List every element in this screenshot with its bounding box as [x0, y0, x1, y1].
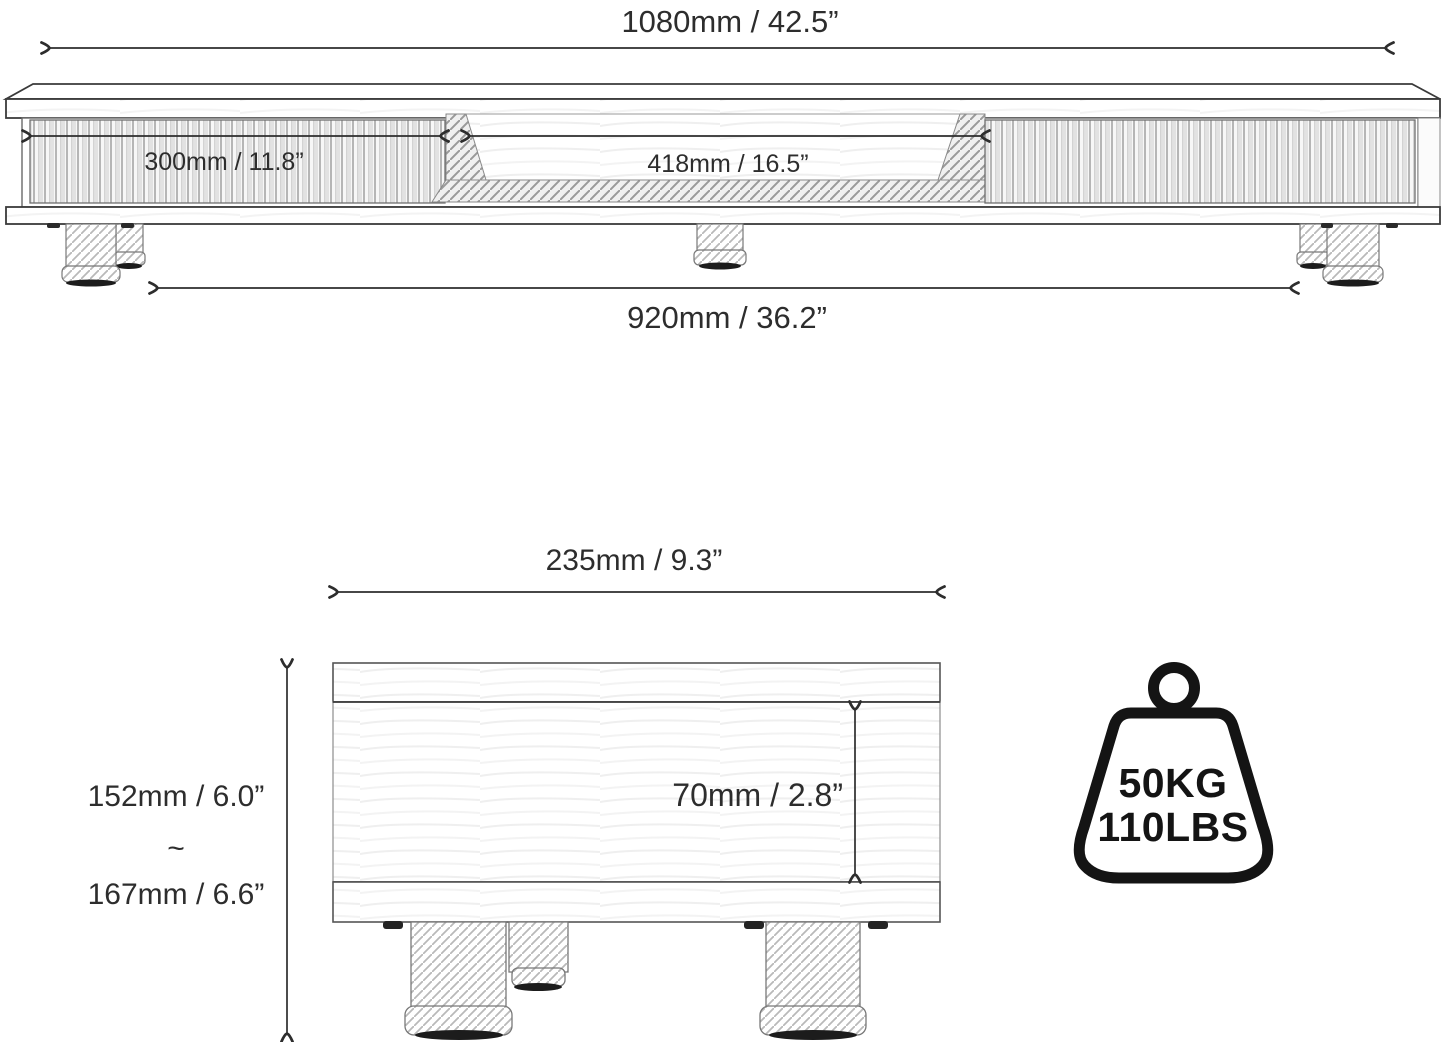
- drawer-width-label: 300mm / 11.8”: [144, 148, 303, 176]
- compartment-shelf-floor: [432, 180, 1000, 202]
- leg-front-right: [1323, 224, 1383, 287]
- side-body: [333, 663, 940, 922]
- front-view-legs: [47, 223, 1398, 287]
- overall-width-dimension: 1080mm / 42.5”: [50, 4, 1385, 48]
- height-dimension: 152mm / 6.0” ~ 167mm / 6.6”: [88, 668, 287, 1033]
- weight-lbs-label: 110LBS: [1097, 804, 1248, 850]
- diagram-canvas: 1080mm / 42.5” 300mm: [0, 0, 1445, 1042]
- height-range-separator: ~: [167, 832, 185, 865]
- side-view-legs: [383, 921, 888, 1040]
- inner-height-label: 70mm / 2.8”: [672, 777, 843, 813]
- leg-back-left: [114, 224, 145, 269]
- leg-back-right: [1297, 224, 1330, 269]
- side-top-panel: [333, 663, 940, 702]
- side-leg-front-left: [405, 922, 512, 1040]
- dimension-diagram: 1080mm / 42.5” 300mm: [0, 0, 1445, 1042]
- bottom-rail: [6, 207, 1440, 224]
- side-bottom-panel: [333, 882, 940, 922]
- depth-label: 235mm / 9.3”: [546, 544, 723, 577]
- overall-width-label: 1080mm / 42.5”: [621, 4, 838, 39]
- right-fluted-drawer: [985, 120, 1415, 203]
- weight-kg-label: 50KG: [1118, 760, 1227, 806]
- tv-stand-top-panel: [6, 84, 1440, 118]
- side-view: 235mm / 9.3” 152mm / 6.0” ~ 167mm / 6.6”…: [88, 544, 940, 1040]
- leg-span-dimension: 920mm / 36.2”: [158, 288, 1290, 335]
- side-leg-front-right: [760, 922, 866, 1040]
- weight-capacity-badge: 50KG 110LBS: [1079, 668, 1268, 879]
- leg-back-middle: [694, 224, 746, 270]
- side-middle-section: [333, 702, 940, 882]
- height-min-label: 152mm / 6.0”: [88, 780, 265, 813]
- depth-dimension: 235mm / 9.3”: [338, 544, 936, 592]
- side-leg-back-left: [509, 922, 568, 991]
- height-max-label: 167mm / 6.6”: [88, 878, 265, 911]
- opening-width-label: 418mm / 16.5”: [647, 150, 808, 178]
- leg-front-left: [62, 224, 120, 287]
- weight-icon-handle: [1154, 668, 1195, 709]
- front-view: 1080mm / 42.5” 300mm: [6, 4, 1440, 335]
- leg-span-label: 920mm / 36.2”: [627, 300, 827, 335]
- body-right-side-face: [1418, 118, 1440, 207]
